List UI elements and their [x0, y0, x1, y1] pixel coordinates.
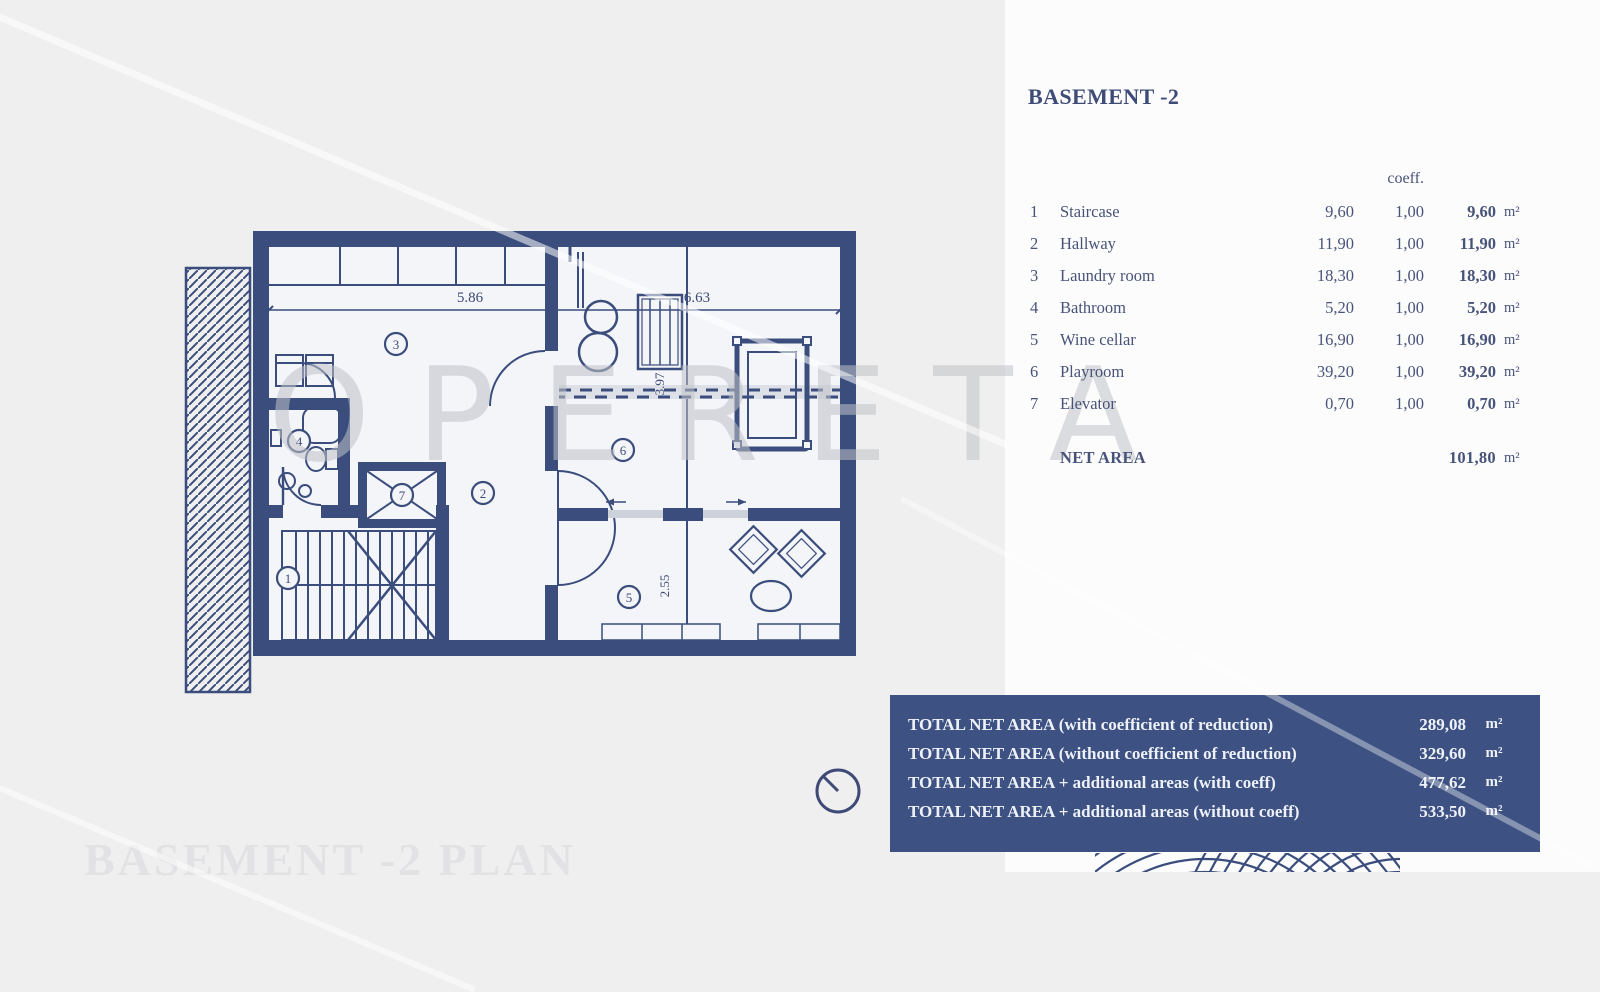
table-row: 5 Wine cellar 16,90 1,00 16,90 m²	[1030, 324, 1530, 356]
room-result: 0,70	[1424, 394, 1496, 414]
totals-row: TOTAL NET AREA (with coefficient of redu…	[890, 710, 1540, 739]
table-row: 7 Elevator 0,70 1,00 0,70 m²	[1030, 388, 1530, 420]
room-coeff: 1,00	[1354, 298, 1424, 318]
room-area: 5,20	[1288, 298, 1354, 318]
room-area: 18,30	[1288, 266, 1354, 286]
room-coeff: 1,00	[1354, 266, 1424, 286]
room-result: 16,90	[1424, 330, 1496, 350]
hatched-retaining-wall	[186, 268, 250, 692]
room-index: 3	[1030, 266, 1060, 286]
room-result: 39,20	[1424, 362, 1496, 382]
net-area-value: 101,80	[1424, 448, 1496, 468]
room-unit: m²	[1496, 332, 1530, 349]
room-circle-3: 3	[393, 337, 400, 352]
room-name: Wine cellar	[1060, 330, 1288, 350]
room-unit: m²	[1496, 300, 1530, 317]
totals-unit: m²	[1466, 745, 1522, 762]
room-result: 9,60	[1424, 202, 1496, 222]
room-unit: m²	[1496, 236, 1530, 253]
room-unit: m²	[1496, 268, 1530, 285]
totals-label: TOTAL NET AREA + additional areas (with …	[908, 773, 1390, 793]
table-row: 1 Staircase 9,60 1,00 9,60 m²	[1030, 196, 1530, 228]
room-circle-5: 5	[626, 590, 633, 605]
room-index: 7	[1030, 394, 1060, 414]
room-result: 18,30	[1424, 266, 1496, 286]
room-area: 0,70	[1288, 394, 1354, 414]
room-name: Laundry room	[1060, 266, 1288, 286]
totals-row: TOTAL NET AREA + additional areas (witho…	[890, 797, 1540, 826]
room-index: 6	[1030, 362, 1060, 382]
plan-caption: BASEMENT -2 PLAN	[84, 833, 576, 886]
totals-label: TOTAL NET AREA (without coefficient of r…	[908, 744, 1390, 764]
totals-box: TOTAL NET AREA (with coefficient of redu…	[890, 695, 1540, 852]
room-index: 2	[1030, 234, 1060, 254]
dim-top-left: 5.86	[457, 290, 484, 306]
totals-value: 289,08	[1390, 715, 1466, 735]
room-result: 11,90	[1424, 234, 1496, 254]
totals-unit: m²	[1466, 774, 1522, 791]
totals-value: 329,60	[1390, 744, 1466, 764]
totals-label: TOTAL NET AREA (with coefficient of redu…	[908, 715, 1390, 735]
table-row: 3 Laundry room 18,30 1,00 18,30 m²	[1030, 260, 1530, 292]
room-name: Hallway	[1060, 234, 1288, 254]
room-name: Elevator	[1060, 394, 1288, 414]
room-coeff: 1,00	[1354, 362, 1424, 382]
room-area: 16,90	[1288, 330, 1354, 350]
room-index: 5	[1030, 330, 1060, 350]
page-title: BASEMENT -2	[1028, 84, 1179, 110]
room-circle-2: 2	[480, 486, 487, 501]
dim-mid-vertical: 3.97	[652, 372, 667, 395]
dim-bottom-vertical: 2.55	[657, 575, 672, 598]
room-unit: m²	[1496, 364, 1530, 381]
room-unit: m²	[1496, 396, 1530, 413]
table-row: 2 Hallway 11,90 1,00 11,90 m²	[1030, 228, 1530, 260]
room-coeff: 1,00	[1354, 330, 1424, 350]
totals-label: TOTAL NET AREA + additional areas (witho…	[908, 802, 1390, 822]
clock-icon	[817, 770, 859, 812]
coeff-column-header: coeff.	[1354, 170, 1424, 196]
room-circle-6: 6	[620, 443, 627, 458]
dashed-beam	[559, 385, 840, 399]
area-table: coeff. 1 Staircase 9,60 1,00 9,60 m² 2 H…	[1030, 170, 1530, 474]
room-unit: m²	[1496, 204, 1530, 221]
room-name: Playroom	[1060, 362, 1288, 382]
net-area-row: NET AREA 101,80 m²	[1030, 442, 1530, 474]
room-name: Staircase	[1060, 202, 1288, 222]
totals-row: TOTAL NET AREA + additional areas (with …	[890, 768, 1540, 797]
table-row: 6 Playroom 39,20 1,00 39,20 m²	[1030, 356, 1530, 388]
table-row: 4 Bathroom 5,20 1,00 5,20 m²	[1030, 292, 1530, 324]
net-area-label: NET AREA	[1060, 448, 1288, 468]
room-circle-7: 7	[399, 488, 406, 503]
totals-value: 533,50	[1390, 802, 1466, 822]
room-name: Bathroom	[1060, 298, 1288, 318]
room-result: 5,20	[1424, 298, 1496, 318]
room-index: 1	[1030, 202, 1060, 222]
room-coeff: 1,00	[1354, 202, 1424, 222]
totals-unit: m²	[1466, 803, 1522, 820]
elevator: 7	[358, 462, 446, 528]
room-circle-1: 1	[285, 571, 292, 586]
totals-row: TOTAL NET AREA (without coefficient of r…	[890, 739, 1540, 768]
room-index: 4	[1030, 298, 1060, 318]
room-coeff: 1,00	[1354, 234, 1424, 254]
room-area: 39,20	[1288, 362, 1354, 382]
room-circle-4: 4	[296, 434, 303, 449]
net-area-unit: m²	[1496, 450, 1530, 467]
room-area: 9,60	[1288, 202, 1354, 222]
room-area: 11,90	[1288, 234, 1354, 254]
totals-unit: m²	[1466, 716, 1522, 733]
stair-wall	[436, 505, 449, 656]
totals-value: 477,62	[1390, 773, 1466, 793]
room-coeff: 1,00	[1354, 394, 1424, 414]
